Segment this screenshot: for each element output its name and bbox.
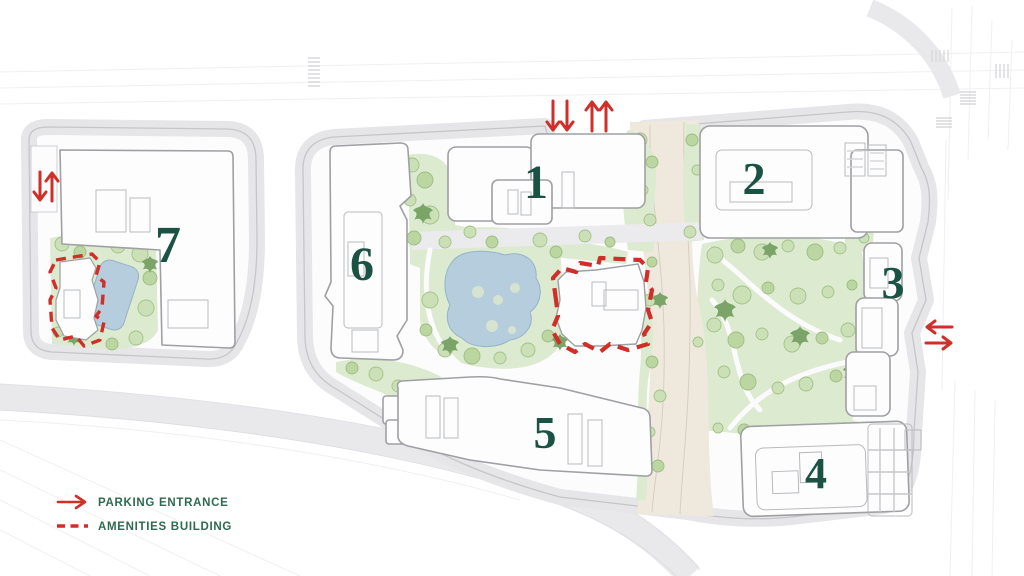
west-parcel: 7 <box>29 127 257 359</box>
building-2-number: 2 <box>743 153 766 204</box>
red-arrow-icon <box>58 496 85 508</box>
parking-arrows-right <box>926 321 952 349</box>
arrow-down-icon <box>547 101 559 130</box>
arrow-right-icon <box>926 337 951 349</box>
parking-arrows-top <box>547 101 612 131</box>
legend-label: AMENITIES BUILDING <box>98 521 232 533</box>
arrow-left-icon <box>927 321 952 333</box>
legend-item-parking-entrance: PARKING ENTRANCE <box>58 496 228 509</box>
legend-item-amenities-building: AMENITIES BUILDING <box>57 521 232 533</box>
building-1-number: 1 <box>524 156 548 209</box>
arrow-up-icon <box>586 102 598 131</box>
site-plan-page: 7 <box>0 0 1024 576</box>
central-amenities-building <box>552 258 652 352</box>
building-7-number: 7 <box>155 217 181 274</box>
arrow-up-icon <box>600 102 612 131</box>
building-3-number: 3 <box>882 257 905 308</box>
legend: PARKING ENTRANCE AMENITIES BUILDING <box>57 496 232 533</box>
site-plan: 7 <box>0 0 1024 576</box>
building-6-number: 6 <box>350 238 374 291</box>
central-pond <box>445 251 540 346</box>
arrow-down-icon <box>561 101 573 130</box>
legend-label: PARKING ENTRANCE <box>98 497 228 509</box>
building-5-number: 5 <box>534 407 557 458</box>
building-4-number: 4 <box>805 449 827 498</box>
west-amenities-building <box>56 258 98 340</box>
crosswalk-hatch-top-center <box>308 58 320 86</box>
